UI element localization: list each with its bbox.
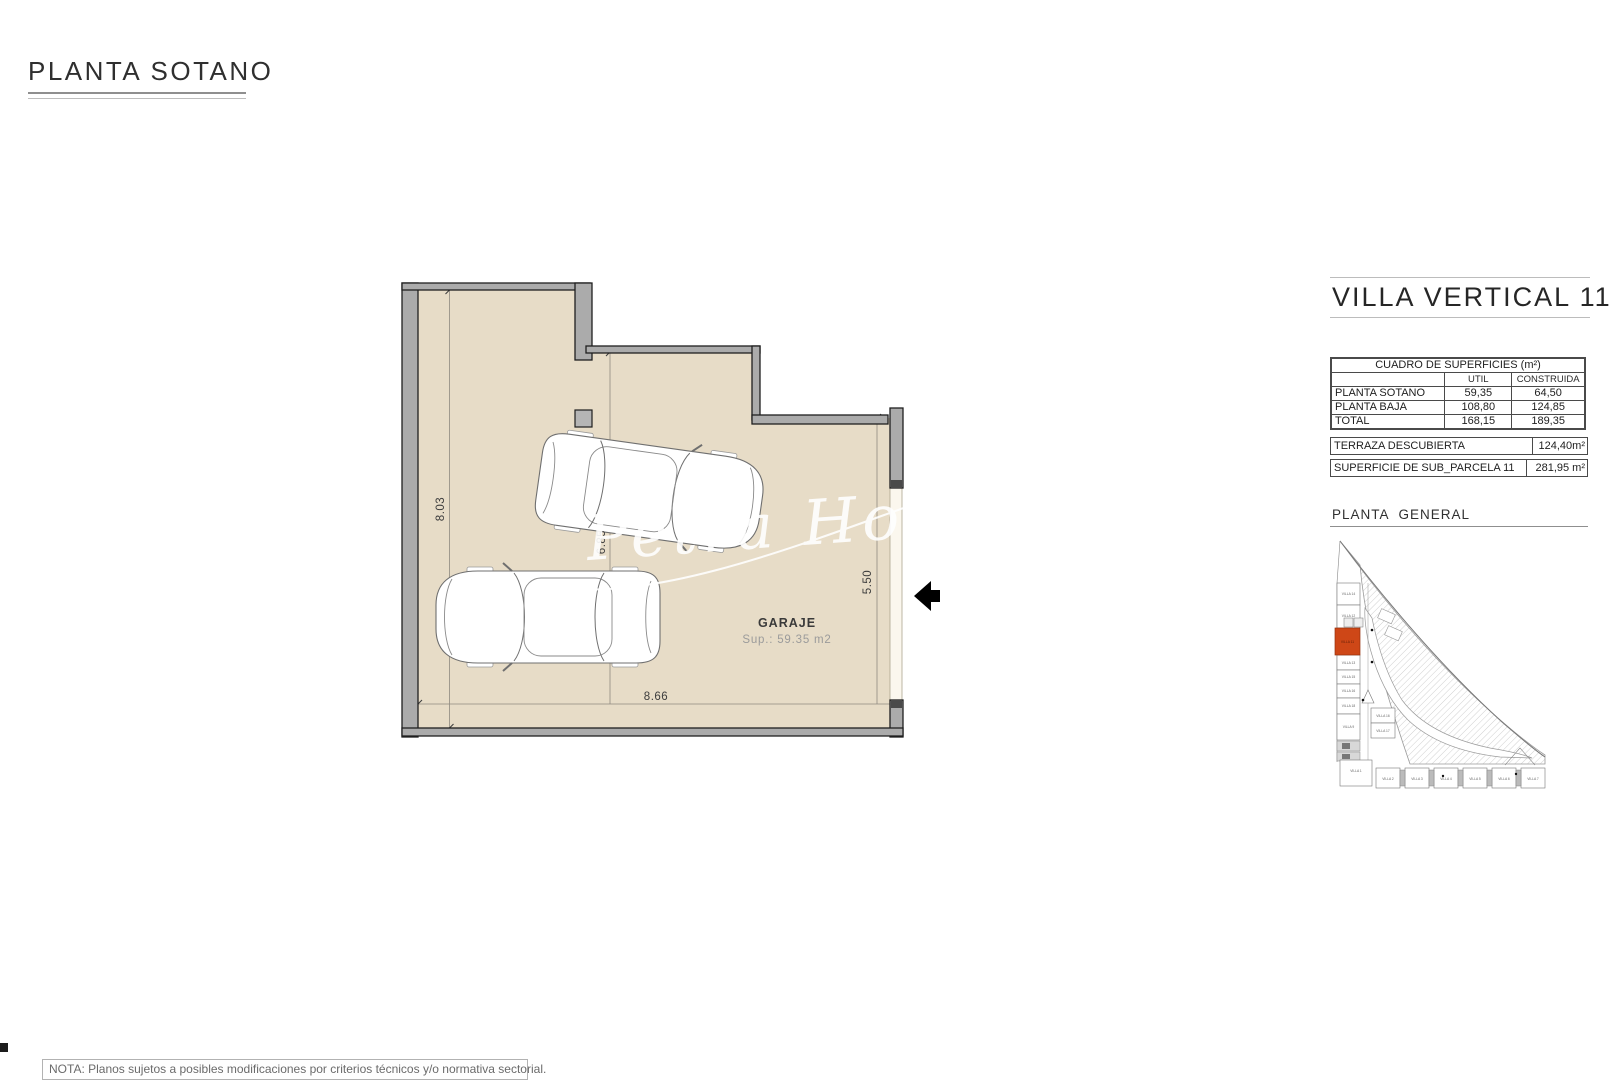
svg-text:VILLA 5: VILLA 5: [1469, 777, 1481, 781]
parcela-label: SUPERFICIE DE SUB_PARCELA 11: [1331, 462, 1526, 474]
room-label: GARAJE: [758, 616, 816, 630]
surface-table-title: CUADRO DE SUPERFICIES (m²): [1331, 358, 1585, 373]
panel-rule-top: [1330, 277, 1590, 278]
door-jamb-bottom: [891, 700, 902, 708]
entrance-arrow-icon: [914, 581, 940, 611]
minimap-title-underline: [1330, 526, 1588, 527]
parcela-value: 281,95 m²: [1526, 459, 1587, 477]
table-row: TOTAL 168,15 189,35: [1331, 415, 1585, 430]
svg-text:VILLA 13: VILLA 13: [1342, 661, 1356, 665]
svg-text:VILLA 14: VILLA 14: [1342, 592, 1356, 596]
floor-plan: 8.03 6.85 5.50 8.66 GARAJE Sup.: 59.35 m…: [380, 255, 960, 765]
pillar: [575, 410, 592, 427]
svg-text:VILLA 7: VILLA 7: [1527, 777, 1539, 781]
svg-text:VILLA 11: VILLA 11: [1341, 640, 1354, 644]
minimap-bottom-row: [1376, 768, 1545, 788]
row-label: PLANTA SOTANO: [1331, 387, 1445, 401]
table-row: PLANTA BAJA 108,80 124,85: [1331, 401, 1585, 415]
row-label: TOTAL: [1331, 415, 1445, 430]
svg-text:VILLA 17: VILLA 17: [1376, 729, 1390, 733]
parcela-row: SUPERFICIE DE SUB_PARCELA 11 281,95 m²: [1330, 459, 1588, 477]
sheet-edge-mark: [0, 1043, 8, 1052]
row-util: 168,15: [1445, 415, 1512, 430]
terraza-row: TERRAZA DESCUBIERTA 124,40m²: [1330, 437, 1588, 455]
panel-rule-bottom: [1330, 317, 1590, 318]
row-label: PLANTA BAJA: [1331, 401, 1445, 415]
table-row: PLANTA SOTANO 59,35 64,50: [1331, 387, 1585, 401]
svg-text:VILLA 16: VILLA 16: [1376, 714, 1390, 718]
page-title: PLANTA SOTANO: [28, 56, 273, 87]
drawing-sheet: PLANTA SOTANO: [0, 0, 1620, 1080]
row-util: 108,80: [1445, 401, 1512, 415]
panel-title: VILLA VERTICAL 11: [1332, 282, 1588, 313]
svg-text:VILLA 4: VILLA 4: [1440, 777, 1452, 781]
svg-text:VILLA 15: VILLA 15: [1342, 675, 1356, 679]
row-util: 59,35: [1445, 387, 1512, 401]
col-header-util: UTIL: [1445, 373, 1512, 387]
room-area-label: Sup.: 59.35 m2: [742, 634, 831, 646]
minimap-title: PLANTA GENERAL: [1332, 507, 1470, 522]
svg-text:VILLA 16: VILLA 16: [1342, 689, 1356, 693]
dimension-bottom: 8.66: [644, 691, 668, 703]
col-header-construida: CONSTRUIDA: [1512, 373, 1585, 387]
row-construida: 124,85: [1512, 401, 1585, 415]
page-title-underline: [28, 92, 246, 99]
surface-table: CUADRO DE SUPERFICIES (m²) UTIL CONSTRUI…: [1330, 357, 1586, 430]
surface-table-corner: [1331, 373, 1445, 387]
row-construida: 189,35: [1512, 415, 1585, 430]
terraza-label: TERRAZA DESCUBIERTA: [1331, 440, 1532, 452]
svg-text:VILLA 3: VILLA 3: [1411, 777, 1423, 781]
svg-text:VILLA 18: VILLA 18: [1342, 704, 1356, 708]
svg-text:VILLA 9: VILLA 9: [1343, 725, 1355, 729]
minimap-villa1-box: [1340, 760, 1372, 786]
row-construida: 64,50: [1512, 387, 1585, 401]
terraza-value: 124,40m²: [1532, 437, 1587, 455]
svg-text:VILLA 12: VILLA 12: [1342, 614, 1356, 618]
dimension-right: 5.50: [862, 570, 874, 594]
dimension-left: 8.03: [435, 497, 447, 521]
footer-note: NOTA: Planos sujetos a posibles modifica…: [42, 1059, 528, 1080]
svg-text:VILLA 1: VILLA 1: [1350, 769, 1362, 773]
car-bottom: [436, 563, 660, 671]
svg-text:VILLA 2: VILLA 2: [1382, 777, 1394, 781]
site-minimap: VILLA 14 VILLA 12 VILLA 11 VILLA 13 VILL…: [1330, 533, 1550, 793]
svg-text:VILLA 6: VILLA 6: [1498, 777, 1510, 781]
